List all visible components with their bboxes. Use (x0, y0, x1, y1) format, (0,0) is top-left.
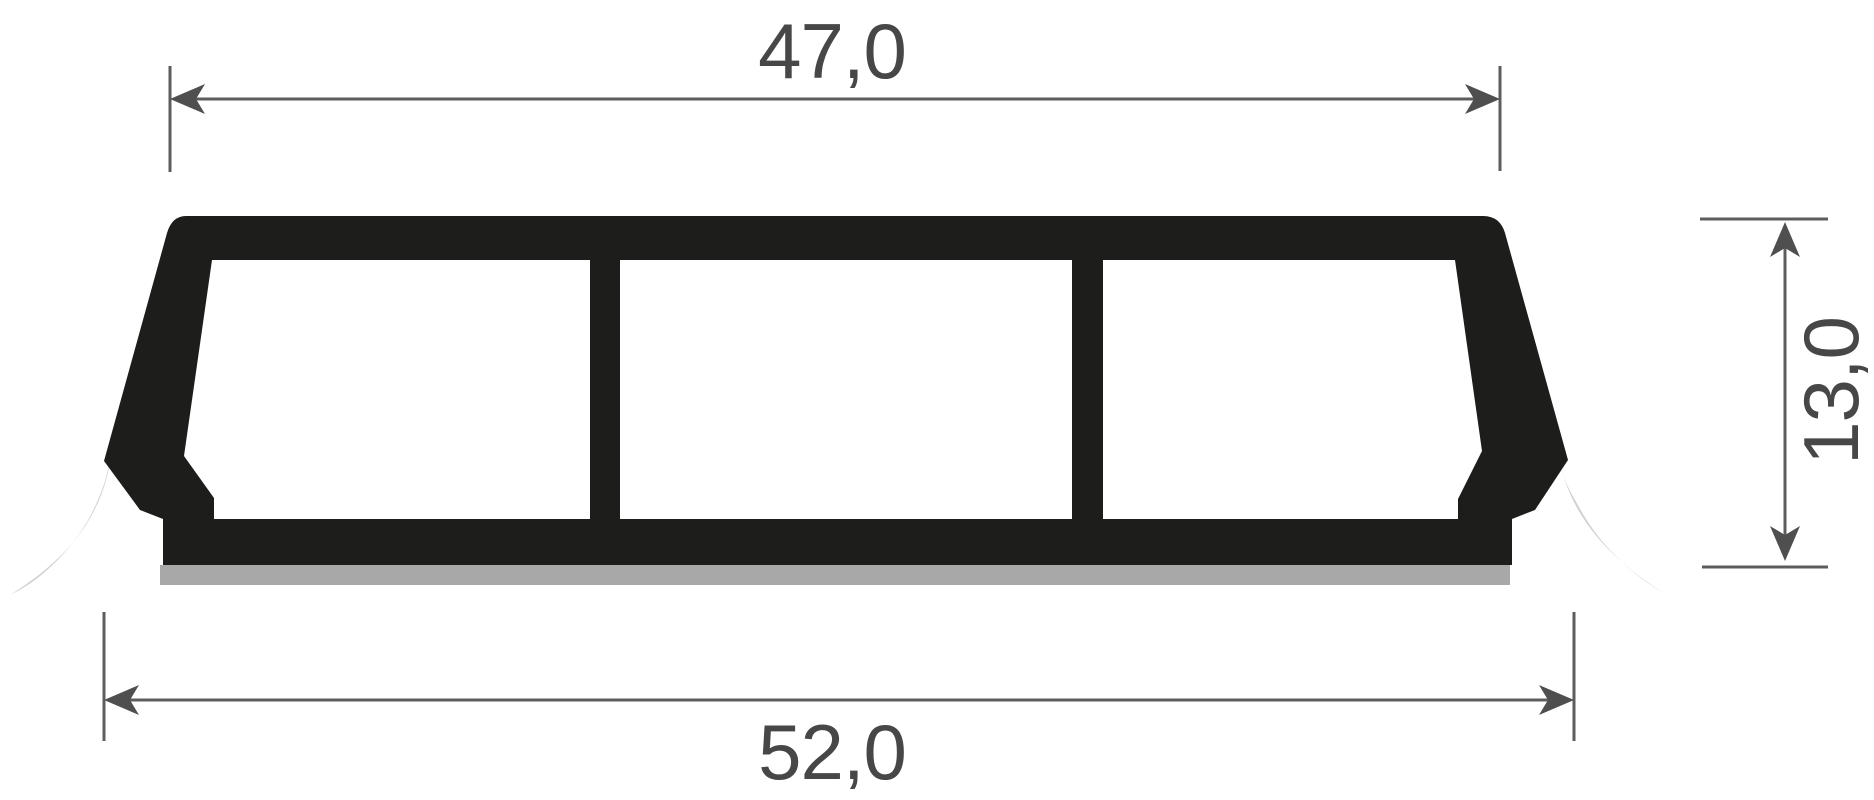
height-label: 13,0 (1787, 317, 1874, 465)
bottom-width-label: 52,0 (758, 708, 906, 796)
top-width-label: 47,0 (758, 7, 906, 95)
base-adhesive-strip (160, 565, 1510, 585)
profile-drawing-canvas: 47,0 52,0 13,0 (0, 0, 1874, 800)
dimension-labels: 47,0 52,0 13,0 (758, 7, 1874, 796)
profile-body (104, 216, 1568, 565)
technical-drawing-page: 47,0 52,0 13,0 (0, 0, 1874, 800)
right-soft-lip (1558, 452, 1662, 592)
left-soft-lip (10, 450, 112, 595)
